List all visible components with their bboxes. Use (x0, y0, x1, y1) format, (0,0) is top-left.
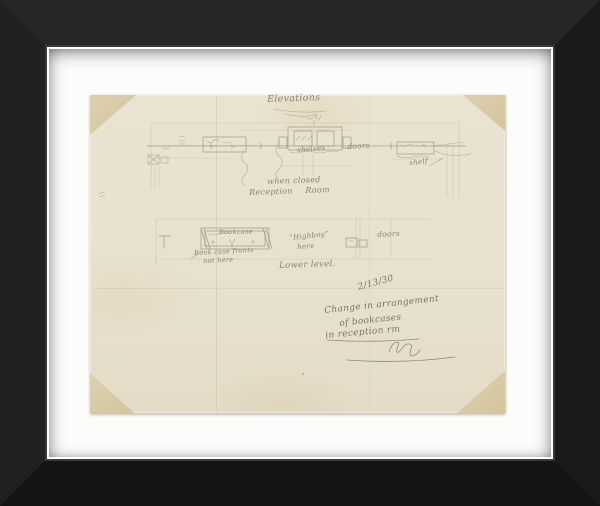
framed-artwork-photo: Elevations shelves doors shelf when clos… (0, 0, 600, 506)
sheet-title: Elevations (267, 93, 321, 104)
lower-level-caption: Lower level. (279, 260, 336, 270)
bookcase-note-line2: not here (203, 256, 233, 264)
bookcase-label: Bookcase (219, 228, 253, 235)
sketch-paper: Elevations shelves doors shelf when clos… (90, 95, 505, 413)
upper-doors-label: doors (347, 142, 370, 151)
lower-doors-label: doors (377, 230, 400, 239)
pencil-sketch-linework (91, 96, 506, 414)
highboy-label-line2: here (297, 243, 315, 251)
pencil-scribbles (99, 109, 471, 375)
signature-flourish (327, 339, 455, 361)
